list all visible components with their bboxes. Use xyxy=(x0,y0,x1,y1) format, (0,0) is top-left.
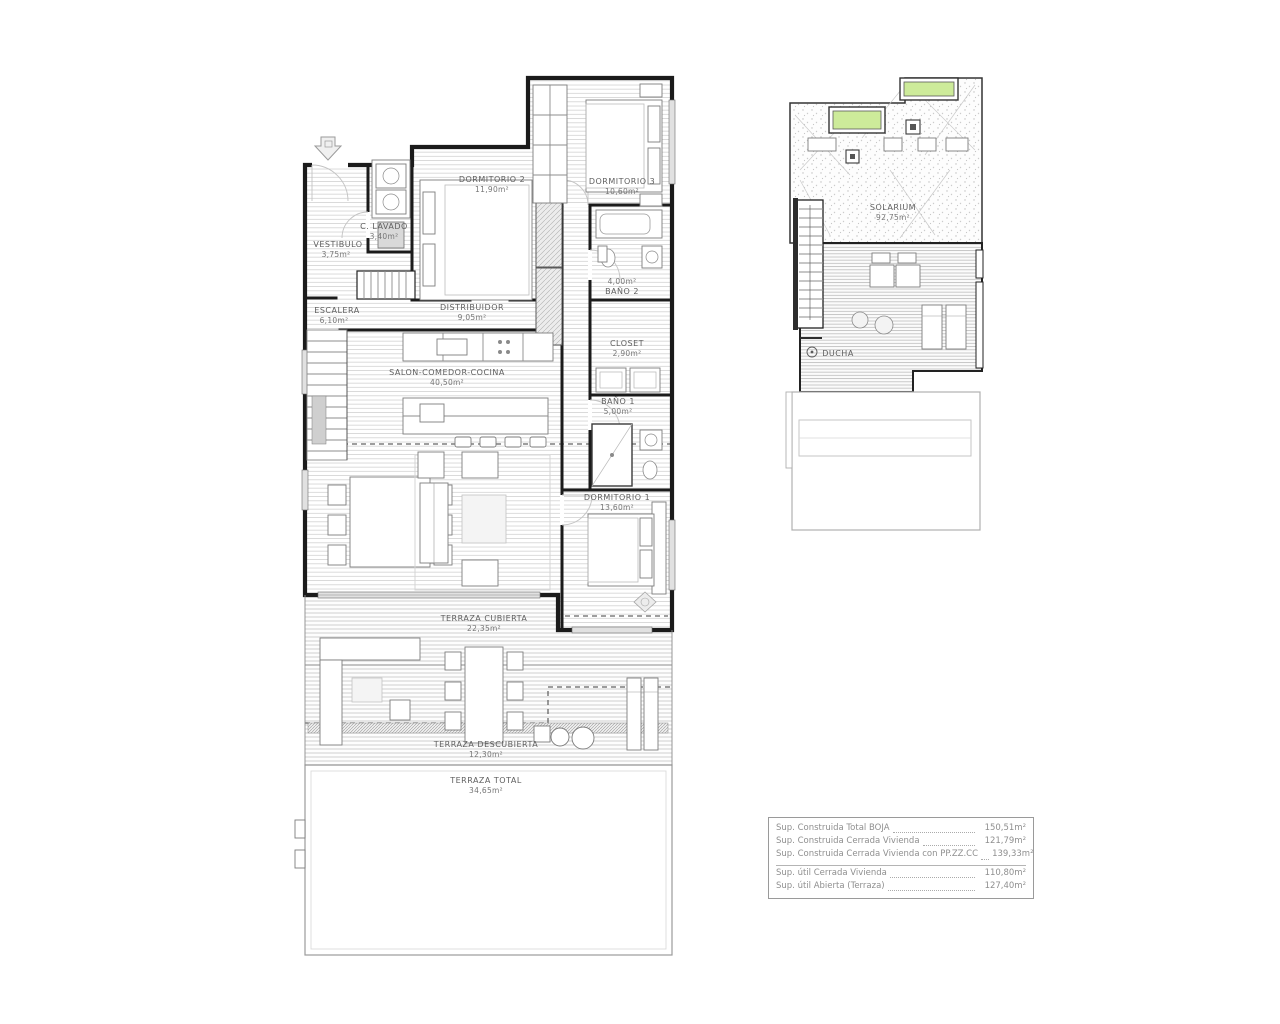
room-area: 9,05m² xyxy=(458,313,487,322)
room-area: 40,50m² xyxy=(430,378,464,387)
room-name: TERRAZA TOTAL xyxy=(449,776,522,785)
room-area: 13,60m² xyxy=(600,503,634,512)
room-name: BAÑO 1 xyxy=(601,396,635,406)
stair-small xyxy=(357,271,415,299)
room-name: ESCALERA xyxy=(314,306,359,315)
room-area: 5,00m² xyxy=(604,407,633,416)
room-name: DUCHA xyxy=(822,349,854,358)
room-area: 92,75m² xyxy=(876,213,910,222)
table-row: Sup. Construida Cerrada Vivienda con PP.… xyxy=(776,848,1026,861)
room-area: 3,40m² xyxy=(370,232,399,241)
table-row: Sup. útil Abierta (Terraza) 127,40m² xyxy=(776,880,1026,893)
main-floor-plan: VESTIBULO 3,75m² C. LAVADO 3,40m² DORMIT… xyxy=(295,78,675,955)
surface-summary-table: Sup. Construida Total BOJA 150,51m² Sup.… xyxy=(768,817,1034,899)
room-area: 4,00m² xyxy=(608,277,637,286)
room-name: SOLARIUM xyxy=(870,203,916,212)
room-area: 2,90m² xyxy=(613,349,642,358)
roof-plan: SOLARIUM 92,75m² DUCHA xyxy=(786,78,983,530)
row-label: Sup. Construida Total BOJA xyxy=(776,822,890,835)
floor-plan-drawing: VESTIBULO 3,75m² C. LAVADO 3,40m² DORMIT… xyxy=(0,0,1280,1024)
dotted-leader xyxy=(981,859,989,860)
row-label: Sup. útil Abierta (Terraza) xyxy=(776,880,885,893)
roof-stair xyxy=(793,198,823,330)
room-name: BAÑO 2 xyxy=(605,286,639,296)
table-row: Sup. Construida Cerrada Vivienda 121,79m… xyxy=(776,835,1026,848)
room-name: CLOSET xyxy=(610,339,644,348)
room-name: DORMITORIO 1 xyxy=(584,493,650,502)
deck-railing xyxy=(976,250,983,368)
row-value: 150,51m² xyxy=(978,822,1026,835)
row-label: Sup. Construida Cerrada Vivienda xyxy=(776,835,920,848)
room-area: 10,60m² xyxy=(605,187,639,196)
room-area: 11,90m² xyxy=(475,185,509,194)
table-row: Sup. útil Cerrada Vivienda 110,80m² xyxy=(776,865,1026,880)
dotted-leader xyxy=(893,832,975,833)
room-name: TERRAZA CUBIERTA xyxy=(440,614,528,623)
table-row: Sup. Construida Total BOJA 150,51m² xyxy=(776,822,1026,835)
row-value: 121,79m² xyxy=(978,835,1026,848)
row-label: Sup. Construida Cerrada Vivienda con PP.… xyxy=(776,848,978,861)
room-label-bano-2: 4,00m² BAÑO 2 xyxy=(605,277,639,296)
room-label-solarium: SOLARIUM 92,75m² xyxy=(870,203,916,222)
row-label: Sup. útil Cerrada Vivienda xyxy=(776,867,887,880)
room-area: 34,65m² xyxy=(469,786,503,795)
floor-plan-sheet: VESTIBULO 3,75m² C. LAVADO 3,40m² DORMIT… xyxy=(0,0,1280,1024)
room-area: 22,35m² xyxy=(467,624,501,633)
dotted-leader xyxy=(923,845,975,846)
room-name: TERRAZA DESCUBIERTA xyxy=(433,740,539,749)
row-value: 110,80m² xyxy=(978,867,1026,880)
row-value: 127,40m² xyxy=(978,880,1026,893)
room-name: DISTRIBUIDOR xyxy=(440,303,504,312)
room-area: 12,30m² xyxy=(469,750,503,759)
skylight-1 xyxy=(829,107,885,133)
room-label-closet: CLOSET 2,90m² xyxy=(610,339,644,358)
lower-floor-outline xyxy=(786,392,980,530)
room-name: DORMITORIO 3 xyxy=(589,177,655,186)
dotted-leader xyxy=(888,890,975,891)
room-area: 3,75m² xyxy=(322,250,351,259)
room-name: SALON-COMEDOR-COCINA xyxy=(389,368,505,377)
skylight-2 xyxy=(900,78,958,100)
room-name: DORMITORIO 2 xyxy=(459,175,525,184)
entrance-arrow-icon xyxy=(315,137,341,160)
stair-left xyxy=(307,330,347,460)
dotted-leader xyxy=(890,877,975,878)
room-area: 6,10m² xyxy=(320,316,349,325)
room-label-ducha: DUCHA xyxy=(822,349,854,358)
bedroom3-furniture xyxy=(533,84,662,206)
room-name: C. LAVADO xyxy=(360,222,408,231)
row-value: 139,33m² xyxy=(992,848,1033,861)
room-name: VESTIBULO xyxy=(313,240,362,249)
